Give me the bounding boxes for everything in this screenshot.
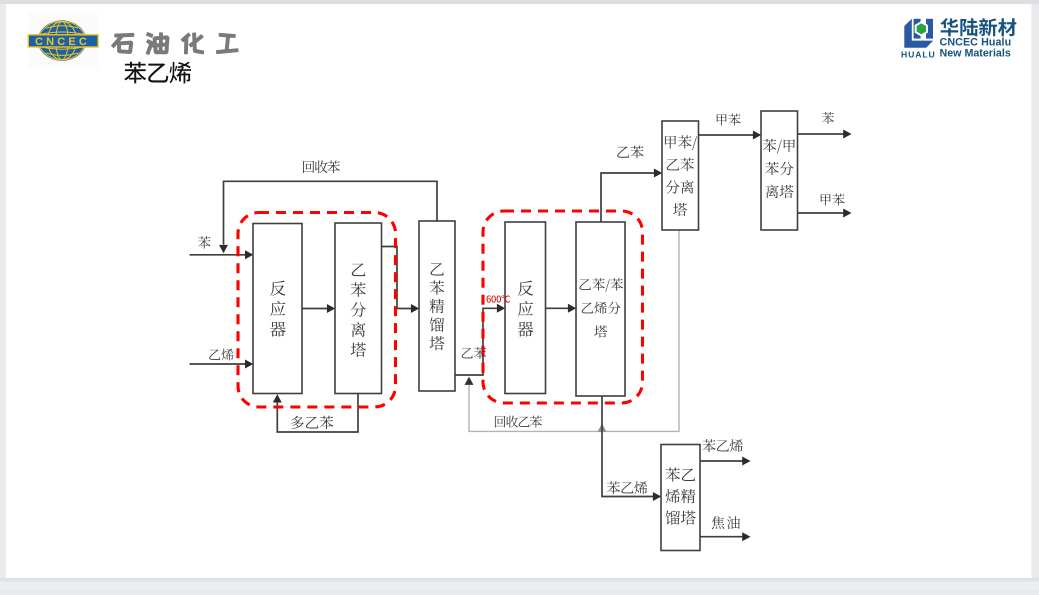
svg-text:HUALU: HUALU [901,49,936,59]
svg-text:New Materials: New Materials [940,48,1011,60]
svg-text:CNCEC: CNCEC [35,36,90,48]
